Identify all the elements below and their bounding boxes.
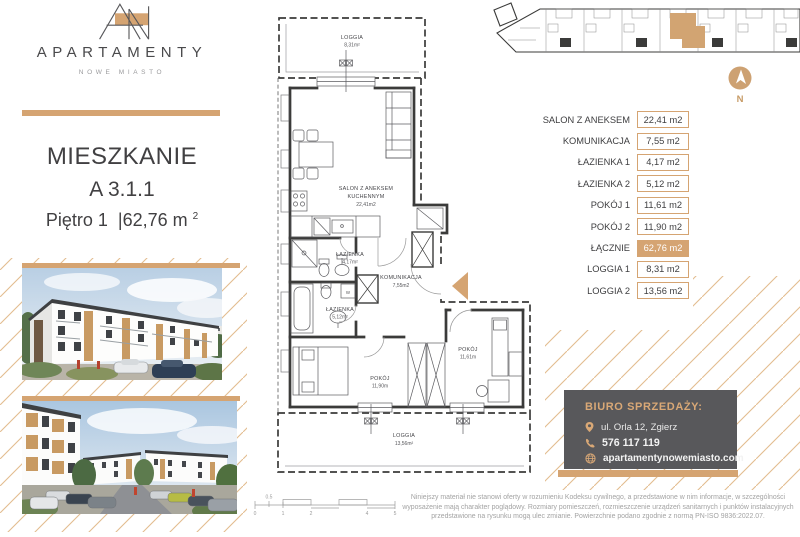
- table-row: ŁAZIENKA 25,12 m2: [538, 175, 693, 192]
- hall-area: 7,55m2: [393, 283, 410, 289]
- sales-office-title: BIURO SPRZEDAŻY:: [585, 401, 703, 413]
- table-row: ŁAZIENKA 14,17 m2: [538, 154, 693, 171]
- building-render-photo-1: [22, 268, 222, 380]
- compass-north-label: N: [737, 94, 744, 105]
- bathroom2-area: 5,12m²: [332, 315, 348, 321]
- brochure-page: APARTAMENTY NOWE MIASTO MIESZKANIE A 3.1…: [0, 0, 800, 537]
- table-row-total: ŁĄCZNIE62,76 m2: [538, 239, 693, 256]
- brand-divider-bar: [22, 110, 220, 116]
- scale-0: 0: [254, 511, 257, 517]
- wardrobes: [408, 343, 445, 407]
- compass: N: [729, 67, 752, 106]
- brand-tagline: NOWE MIASTO: [18, 69, 226, 76]
- bed-single-desk: [477, 318, 523, 402]
- phone-icon: [585, 438, 595, 448]
- bathroom2-label: ŁAZIENKA: [326, 307, 354, 313]
- loggia2-label: LOGGIA: [393, 433, 415, 439]
- bathroom1-fixtures: [292, 240, 349, 277]
- hall-label: KOMUNIKACJA: [380, 275, 422, 281]
- table-row: LOGGIA 213,56 m2: [538, 282, 693, 299]
- neighbour-wall-stubs: [281, 95, 289, 372]
- listing-title-block: MIESZKANIE A 3.1.1 Piętro 1 |62,76 m 2: [8, 143, 236, 231]
- sales-office-address: ul. Orla 12, Zgierz: [585, 421, 677, 433]
- loggia1-label: LOGGIA: [341, 35, 363, 41]
- bathroom1-label: ŁAZIENKA: [336, 252, 364, 258]
- floor-and-area: Piętro 1 |62,76 m 2: [8, 210, 236, 231]
- room1-area: 11,61m: [460, 355, 476, 361]
- room1-label: POKÓJ: [458, 346, 478, 353]
- logo-gold-block: [115, 13, 149, 25]
- areas-table: SALON Z ANEKSEM22,41 m2 KOMUNIKACJA7,55 …: [538, 111, 693, 304]
- loggia1-area: 8,31m²: [344, 43, 360, 49]
- sales-office-website[interactable]: apartamentynowemiasto.com: [585, 453, 744, 464]
- legal-disclaimer: Niniejszy materiał nie stanowi oferty w …: [402, 493, 794, 522]
- washer-label: W: [346, 290, 351, 295]
- sales-office-phone[interactable]: 576 117 119: [585, 437, 660, 449]
- room2-area: 11,90m: [372, 384, 388, 390]
- table-row: POKÓJ 111,61 m2: [538, 197, 693, 214]
- bathroom1-area: 4,17m²: [342, 260, 358, 266]
- table-row: KOMUNIKACJA7,55 m2: [538, 132, 693, 149]
- floor-label: Piętro 1: [46, 210, 108, 230]
- salon-area: 22,41m2: [356, 202, 376, 208]
- bed-double: [293, 347, 348, 395]
- scale-2: 2: [310, 511, 313, 517]
- total-area: 62,76 m: [123, 210, 188, 230]
- site-plan-diamond: [494, 3, 517, 26]
- brand-name: APARTAMENTY: [18, 44, 226, 61]
- walls: [290, 88, 523, 407]
- windows: [317, 77, 484, 412]
- scale-1: 1: [282, 511, 285, 517]
- scale-4: 4: [366, 511, 369, 517]
- building-render-photo-2: [22, 401, 237, 514]
- dining-table: [293, 130, 333, 179]
- window-axis-icon: [340, 50, 470, 434]
- sofa: [386, 92, 411, 158]
- scale-5: 5: [394, 511, 397, 517]
- table-row: SALON Z ANEKSEM22,41 m2: [538, 111, 693, 128]
- scale-bar: 0 0.5 1 2 4 5: [250, 494, 400, 520]
- ventilation-shafts: [357, 232, 433, 303]
- area-exponent: 2: [193, 211, 199, 222]
- globe-icon: [585, 453, 596, 464]
- loggia2-area: 13,56m²: [395, 441, 414, 447]
- apartment-number: A 3.1.1: [8, 178, 236, 202]
- sales-office-box: BIURO SPRZEDAŻY: ul. Orla 12, Zgierz 576…: [564, 390, 737, 469]
- listing-type: MIESZKANIE: [8, 143, 236, 171]
- building-site-plan: N: [480, 0, 800, 110]
- table-row: LOGGIA 18,31 m2: [538, 261, 693, 278]
- location-pin-icon: [585, 421, 594, 433]
- brand-logo-mark: [87, 1, 157, 41]
- salon-label-2: KUCHENNYM: [348, 194, 385, 200]
- entrance-arrow: [452, 272, 468, 300]
- table-row: POKÓJ 211,90 m2: [538, 218, 693, 235]
- room2-label: POKÓJ: [370, 375, 390, 382]
- scale-05: 0.5: [266, 495, 273, 501]
- site-plan-outline: [497, 9, 800, 52]
- sales-office-gold-bar: [558, 470, 738, 477]
- salon-label-1: SALON Z ANEKSEM: [339, 186, 394, 192]
